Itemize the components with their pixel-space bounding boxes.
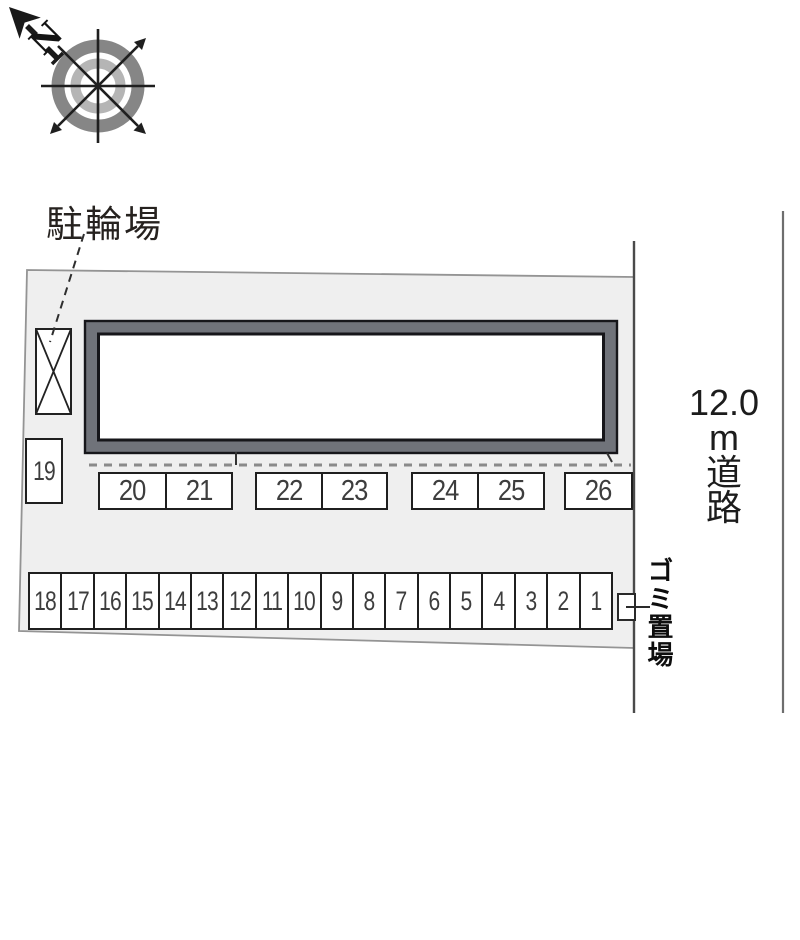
parking-space: 16 [93,574,125,628]
parking-space-19: 19 [25,438,63,504]
parking-space-number: 22 [275,475,302,508]
parking-space-number: 6 [428,586,439,617]
parking-space: 18 [30,574,60,628]
parking-space: 4 [481,574,513,628]
parking-space-number: 19 [33,456,55,487]
parking-space-number: 3 [526,586,537,617]
parking-space: 3 [514,574,546,628]
parking-space: 1 [579,574,611,628]
parking-space-number: 15 [131,586,153,617]
parking-space-number: 4 [493,586,504,617]
parking-group: 26 [564,472,633,510]
parking-space: 13 [190,574,222,628]
garbage-area-label: ゴミ置場 [641,557,678,682]
parking-space: 14 [158,574,190,628]
parking-space: 22 [257,474,321,508]
parking-space-number: 24 [432,475,459,508]
parking-space: 23 [321,474,387,508]
parking-space-number: 8 [364,586,375,617]
parking-space-number: 14 [164,586,186,617]
compass: N [9,7,155,143]
parking-group: 2425 [411,472,545,510]
parking-space-number: 13 [196,586,218,617]
parking-space: 20 [100,474,165,508]
parking-space-number: 23 [341,475,368,508]
parking-space-number: 25 [498,475,525,508]
parking-space: 8 [352,574,384,628]
parking-space-number: 1 [590,586,601,617]
parking-space: 26 [566,474,631,508]
parking-space: 2 [546,574,578,628]
parking-group: 2021 [98,472,233,510]
parking-space: 7 [384,574,416,628]
parking-space: 6 [417,574,449,628]
compass-north-arrow: N [9,7,70,64]
building-interior [99,334,604,440]
parking-space-number: 11 [262,586,282,617]
parking-space-number: 21 [185,475,212,508]
parking-space: 9 [320,574,352,628]
parking-space: 25 [477,474,543,508]
road-name-char-2: 路 [706,490,742,525]
parking-space: 21 [165,474,232,508]
parking-space: 10 [287,574,319,628]
parking-space-number: 17 [67,586,89,617]
road-width-label: 12.0 m 道 路 [676,385,772,525]
parking-space-number: 12 [229,586,251,617]
parking-space: 24 [413,474,477,508]
site-plan: N 駐輪場 12.0 m 道 路 ゴミ置場 19 20212223242526 … [0,0,800,940]
parking-space: 17 [60,574,92,628]
parking-space: 5 [449,574,481,628]
parking-space: 12 [222,574,254,628]
bicycle-parking-box [36,329,71,414]
parking-space-number: 26 [585,475,612,508]
parking-space-number: 18 [34,586,56,617]
parking-space-number: 16 [99,586,121,617]
parking-space: 19 [27,440,61,502]
parking-group: 2223 [255,472,388,510]
parking-space-number: 10 [293,586,315,617]
road-width-unit: m [709,420,739,455]
parking-space-number: 20 [119,475,146,508]
parking-space-number: 7 [396,586,407,617]
parking-space: 11 [255,574,287,628]
parking-space: 15 [125,574,157,628]
road-name-char-1: 道 [706,455,742,490]
road-width-number: 12.0 [689,385,759,420]
bicycle-parking-label: 駐輪場 [46,194,163,248]
parking-space-number: 2 [558,586,569,617]
parking-space-number: 5 [461,586,472,617]
parking-space-number: 9 [331,586,342,617]
lower-parking-row: 181716151413121110987654321 [28,572,613,630]
